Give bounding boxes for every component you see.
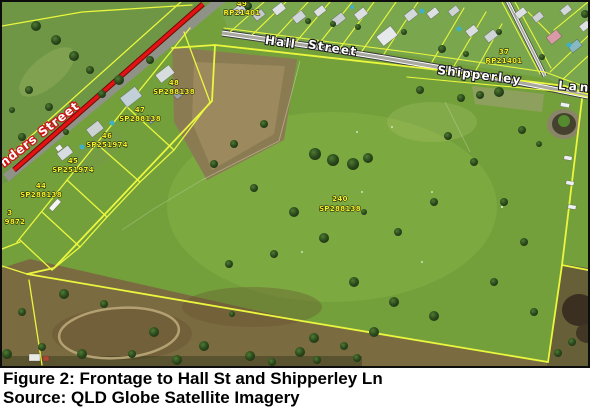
figure-caption: Figure 2: Frontage to Hall St and Shippe… <box>0 368 600 388</box>
document-page: { "figure": { "caption": "Figure 2: Fron… <box>0 0 600 409</box>
svg-text:9872: 9872 <box>5 218 26 226</box>
svg-text:RP21401: RP21401 <box>224 9 261 17</box>
svg-text:48: 48 <box>169 79 179 87</box>
svg-text:SP288138: SP288138 <box>20 191 62 199</box>
svg-text:240: 240 <box>332 195 348 203</box>
svg-text:37: 37 <box>499 48 509 56</box>
dam-bush <box>558 115 570 127</box>
svg-text:45: 45 <box>68 157 78 165</box>
satellite-map: nders Street Hall Street Shipperley Lane… <box>0 0 590 368</box>
svg-text:RP21401: RP21401 <box>486 57 523 65</box>
svg-text:SP288138: SP288138 <box>153 88 195 96</box>
satellite-map-canvas: nders Street Hall Street Shipperley Lane… <box>2 2 588 366</box>
svg-text:SP251974: SP251974 <box>52 166 94 174</box>
svg-text:3: 3 <box>7 209 12 217</box>
svg-text:47: 47 <box>135 106 145 114</box>
svg-text:SP251974: SP251974 <box>86 141 128 149</box>
figure-caption-block: Figure 2: Frontage to Hall St and Shippe… <box>0 368 600 409</box>
figure-source: Source: QLD Globe Satellite Imagery <box>0 388 600 407</box>
svg-text:49: 49 <box>237 2 247 8</box>
svg-text:SP288138: SP288138 <box>119 115 161 123</box>
svg-text:46: 46 <box>102 132 112 140</box>
svg-text:SP288138: SP288138 <box>319 205 361 213</box>
svg-text:44: 44 <box>36 182 46 190</box>
